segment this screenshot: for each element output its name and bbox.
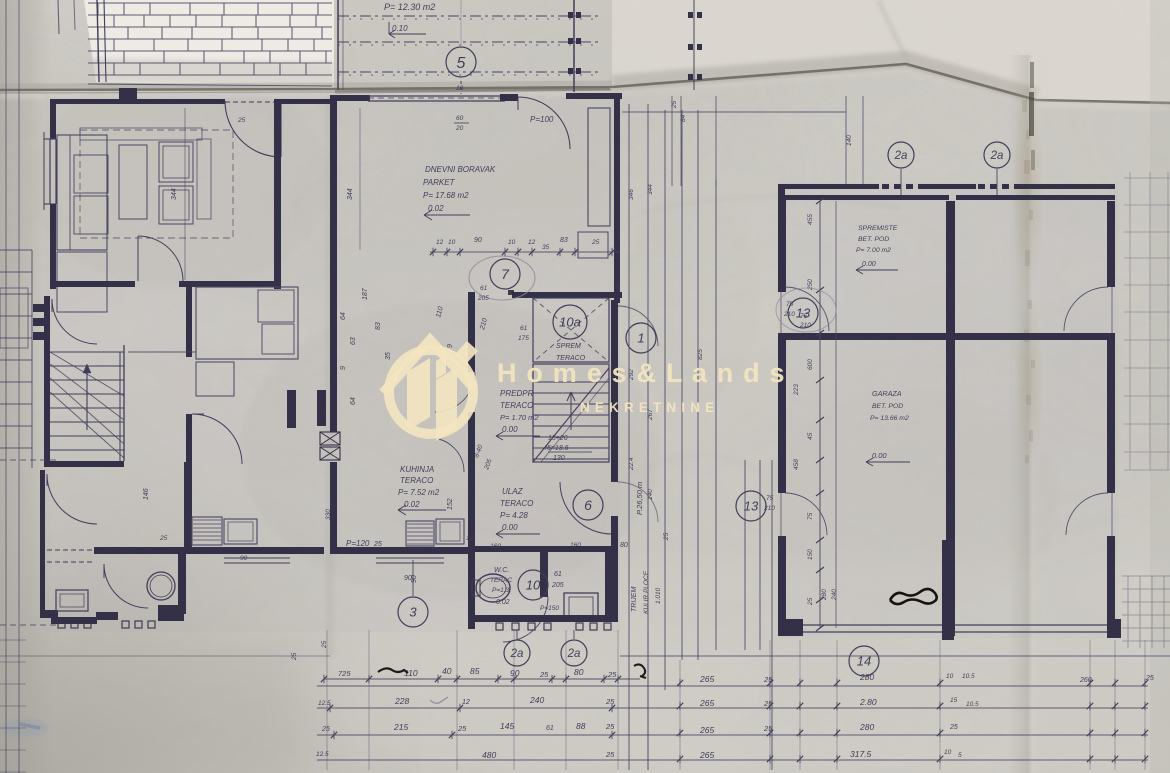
svg-text:W.C.: W.C.	[494, 567, 509, 574]
svg-text:280: 280	[821, 589, 828, 601]
svg-text:TERACO: TERACO	[500, 499, 533, 508]
svg-text:265: 265	[699, 750, 714, 760]
svg-text:PREDPR: PREDPR	[500, 389, 534, 398]
svg-text:PARKET: PARKET	[423, 178, 456, 187]
svg-text:344: 344	[647, 184, 654, 195]
svg-text:1.010: 1.010	[655, 587, 662, 604]
svg-text:90: 90	[411, 575, 418, 583]
svg-text:25: 25	[237, 117, 246, 124]
svg-text:25: 25	[949, 724, 958, 731]
svg-text:280: 280	[859, 722, 874, 732]
svg-text:15+26: 15+26	[548, 435, 568, 442]
svg-text:TERACO: TERACO	[500, 401, 533, 410]
svg-text:64: 64	[340, 312, 347, 320]
svg-text:25: 25	[457, 724, 467, 733]
svg-text:75: 75	[786, 301, 794, 308]
svg-text:317.5: 317.5	[850, 749, 872, 759]
svg-text:10: 10	[448, 239, 456, 246]
svg-text:DNEVNI BORAVAK: DNEVNI BORAVAK	[425, 165, 496, 174]
svg-text:215: 215	[393, 722, 408, 732]
svg-text:P=150: P=150	[540, 605, 559, 612]
svg-text:40: 40	[442, 666, 452, 676]
svg-text:725: 725	[338, 669, 351, 678]
svg-text:P=120: P=120	[346, 539, 370, 548]
svg-text:P= 7.52 m2: P= 7.52 m2	[398, 488, 440, 497]
svg-text:10: 10	[944, 749, 952, 756]
svg-text:P= 7.00 m2: P= 7.00 m2	[856, 247, 891, 254]
svg-text:25: 25	[607, 670, 617, 679]
svg-text:5: 5	[457, 55, 466, 72]
svg-text:160: 160	[490, 543, 501, 550]
svg-text:20: 20	[455, 125, 464, 132]
svg-text:60: 60	[456, 115, 464, 122]
svg-text:N E K R E T N I N E: N E K R E T N I N E	[580, 400, 715, 415]
svg-text:240: 240	[831, 589, 838, 601]
svg-text:75: 75	[807, 512, 814, 520]
svg-text:90: 90	[474, 237, 482, 244]
svg-text:140: 140	[647, 489, 654, 500]
svg-text:12: 12	[466, 535, 474, 542]
svg-text:12: 12	[528, 239, 536, 246]
svg-text:175: 175	[518, 335, 529, 342]
svg-text:75: 75	[766, 495, 774, 502]
svg-text:35: 35	[542, 244, 550, 251]
svg-text:10a: 10a	[559, 315, 581, 330]
svg-text:12.5: 12.5	[318, 700, 331, 707]
svg-text:0.02: 0.02	[404, 500, 420, 509]
svg-text:/5=18.6: /5=18.6	[544, 445, 569, 452]
svg-text:9: 9	[340, 366, 347, 370]
svg-text:344: 344	[171, 188, 178, 200]
svg-text:346: 346	[628, 189, 635, 200]
svg-text:228: 228	[394, 696, 409, 706]
svg-text:205: 205	[477, 295, 489, 302]
svg-text:SPREMISTE: SPREMISTE	[858, 225, 898, 232]
svg-text:205: 205	[551, 582, 564, 589]
svg-text:25: 25	[159, 535, 168, 542]
svg-text:BET. POD: BET. POD	[872, 403, 903, 410]
svg-text:83: 83	[560, 237, 568, 244]
svg-text:25: 25	[605, 750, 615, 759]
svg-text:25: 25	[539, 670, 549, 679]
svg-text:600: 600	[807, 359, 814, 370]
svg-text:P= 4.28: P= 4.28	[500, 511, 528, 520]
svg-text:10.5: 10.5	[962, 673, 975, 680]
svg-text:80: 80	[620, 542, 628, 549]
svg-text:80: 80	[574, 667, 584, 677]
svg-text:458: 458	[793, 459, 800, 470]
svg-text:60: 60	[615, 282, 622, 290]
svg-text:25: 25	[321, 726, 330, 733]
svg-text:25: 25	[291, 652, 298, 661]
svg-text:0.00: 0.00	[502, 425, 518, 434]
svg-text:152: 152	[447, 498, 454, 510]
svg-text:1: 1	[637, 331, 644, 346]
svg-text:10: 10	[946, 673, 954, 680]
svg-text:2.80: 2.80	[859, 697, 877, 707]
svg-text:3: 3	[409, 605, 417, 620]
svg-text:TRIJEM: TRIJEM	[631, 587, 638, 612]
svg-text:35: 35	[385, 352, 392, 360]
svg-text:83: 83	[375, 322, 382, 330]
svg-text:2a: 2a	[567, 648, 581, 660]
svg-text:2a: 2a	[894, 150, 908, 162]
svg-text:SPREM: SPREM	[556, 343, 581, 350]
svg-text:14: 14	[857, 654, 871, 669]
svg-text:GARAZA: GARAZA	[872, 389, 902, 398]
svg-text:10.5: 10.5	[966, 701, 979, 708]
svg-text:P.26,50 m: P.26,50 m	[635, 482, 644, 515]
svg-text:ULAZ: ULAZ	[502, 487, 524, 496]
svg-text:25: 25	[671, 100, 678, 109]
svg-text:280: 280	[859, 672, 874, 682]
svg-text:265: 265	[699, 674, 714, 684]
svg-text:146: 146	[143, 488, 150, 500]
svg-text:25: 25	[591, 239, 600, 246]
svg-text:344: 344	[347, 188, 354, 200]
svg-text:0.10: 0.10	[392, 24, 408, 33]
svg-text:P= 17.68 m2: P= 17.68 m2	[423, 191, 469, 200]
svg-text:6: 6	[584, 497, 592, 513]
svg-text:0.02: 0.02	[428, 204, 444, 213]
svg-text:85: 85	[470, 666, 480, 676]
svg-text:45: 45	[807, 432, 814, 440]
svg-text:25: 25	[763, 675, 773, 684]
svg-text:25: 25	[763, 699, 773, 708]
svg-text:61: 61	[520, 325, 528, 332]
svg-text:150: 150	[807, 549, 814, 560]
svg-text:265: 265	[699, 698, 714, 708]
svg-text:15: 15	[950, 697, 958, 704]
svg-text:12: 12	[462, 699, 470, 706]
svg-text:25: 25	[663, 532, 670, 541]
svg-text:0.00: 0.00	[862, 261, 876, 268]
svg-text:187: 187	[362, 287, 369, 300]
svg-text:61: 61	[480, 285, 488, 292]
svg-text:64: 64	[350, 397, 357, 405]
svg-text:10: 10	[526, 578, 541, 593]
svg-text:KUHINJA: KUHINJA	[400, 465, 434, 474]
svg-text:10: 10	[508, 239, 516, 246]
svg-text:140: 140	[846, 135, 853, 146]
svg-text:25: 25	[373, 541, 382, 548]
svg-text:455: 455	[807, 214, 814, 225]
svg-text:90: 90	[240, 555, 248, 562]
svg-text:TERACO: TERACO	[400, 476, 433, 485]
svg-text:12: 12	[436, 239, 444, 246]
svg-text:130: 130	[553, 455, 565, 462]
svg-text:9: 9	[447, 344, 454, 348]
svg-text:110: 110	[404, 668, 418, 678]
svg-text:90: 90	[510, 668, 520, 678]
svg-text:0.00: 0.00	[872, 451, 887, 460]
svg-text:61: 61	[554, 571, 562, 578]
svg-text:61: 61	[546, 725, 554, 732]
svg-text:KULIR PLOCE: KULIR PLOCE	[643, 570, 650, 614]
svg-text:88: 88	[576, 721, 586, 731]
svg-text:7: 7	[501, 266, 510, 282]
svg-text:63: 63	[350, 337, 357, 345]
svg-text:480: 480	[482, 750, 496, 760]
svg-text:25: 25	[605, 722, 615, 731]
svg-text:BET. POD: BET. POD	[858, 236, 889, 243]
svg-text:250: 250	[807, 279, 814, 291]
svg-text:2a: 2a	[510, 648, 524, 660]
svg-text:H o m e s & L a n d s: H o m e s & L a n d s	[497, 358, 786, 388]
svg-text:25: 25	[807, 597, 814, 606]
svg-text:240: 240	[529, 695, 544, 705]
svg-text:84: 84	[680, 114, 687, 122]
svg-text:22.4: 22.4	[628, 457, 635, 471]
svg-text:P=1.3: P=1.3	[492, 587, 510, 594]
svg-text:5: 5	[958, 752, 962, 759]
svg-text:145: 145	[500, 721, 514, 731]
svg-text:25: 25	[605, 697, 615, 706]
svg-text:0.00: 0.00	[502, 523, 518, 532]
svg-text:210: 210	[763, 505, 775, 512]
svg-text:265: 265	[699, 725, 714, 735]
svg-text:223: 223	[793, 384, 800, 396]
svg-text:2a: 2a	[990, 150, 1004, 162]
svg-text:P= 13.66 m2: P= 13.66 m2	[870, 415, 909, 422]
svg-text:13: 13	[796, 306, 811, 321]
svg-text:210: 210	[783, 311, 795, 318]
svg-text:330: 330	[325, 509, 332, 520]
svg-text:10: 10	[456, 85, 464, 92]
svg-text:13: 13	[744, 499, 759, 514]
svg-text:P=100: P=100	[530, 115, 554, 124]
svg-text:P= 12.30 m2: P= 12.30 m2	[384, 2, 435, 12]
